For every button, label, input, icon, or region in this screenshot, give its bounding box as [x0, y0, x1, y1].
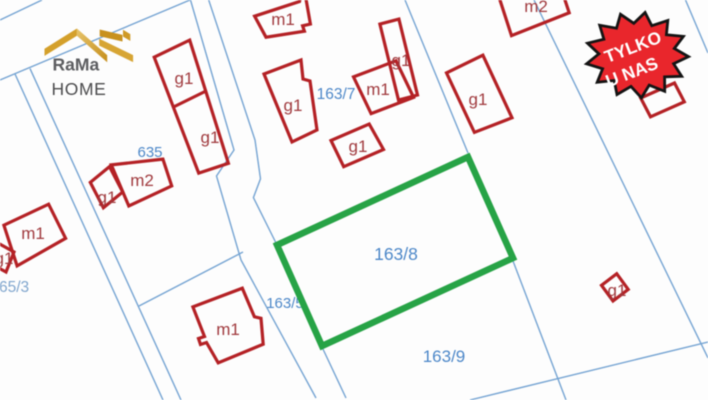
- svg-text:163/8: 163/8: [374, 244, 418, 264]
- svg-text:g1: g1: [201, 128, 220, 147]
- svg-text:g1: g1: [284, 96, 303, 115]
- svg-text:65/3: 65/3: [0, 279, 29, 296]
- svg-text:m1: m1: [21, 224, 45, 243]
- svg-text:g1: g1: [608, 281, 627, 300]
- svg-text:m1: m1: [366, 80, 390, 99]
- svg-text:g1: g1: [469, 90, 488, 109]
- svg-text:g1: g1: [0, 249, 13, 268]
- svg-text:g1: g1: [392, 51, 411, 70]
- svg-text:163/9: 163/9: [423, 347, 466, 366]
- svg-text:m1: m1: [216, 320, 240, 339]
- svg-text:g1: g1: [98, 188, 117, 207]
- svg-text:163/7: 163/7: [317, 86, 356, 103]
- svg-text:m1: m1: [271, 10, 295, 29]
- svg-text:m2: m2: [130, 171, 154, 190]
- svg-text:g1: g1: [175, 69, 194, 88]
- svg-text:g1: g1: [349, 137, 368, 156]
- svg-text:HOME: HOME: [52, 79, 107, 99]
- svg-text:RaMa: RaMa: [53, 55, 100, 75]
- svg-text:m2: m2: [524, 0, 548, 16]
